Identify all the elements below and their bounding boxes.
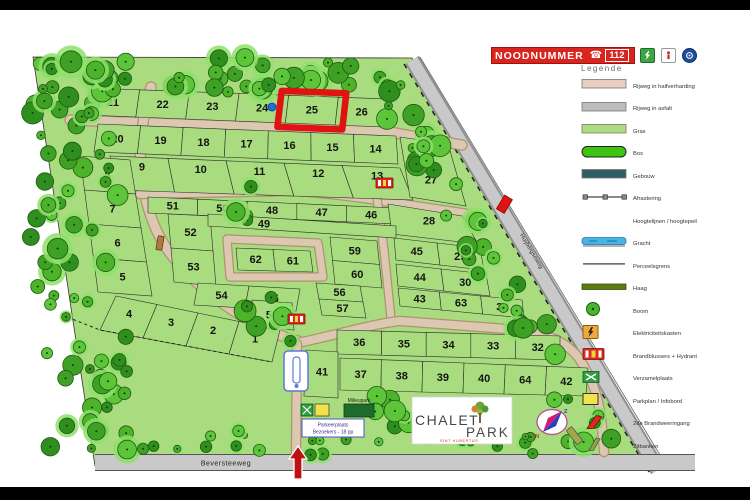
assembly-point-icon (301, 404, 313, 416)
plot-number: 26 (356, 107, 368, 119)
legend-item: Perceelsgrens (581, 257, 747, 276)
legend-item: Hoogtelijnen / hoogtepeil (581, 212, 747, 231)
legend-swatch-tree-icon (581, 302, 633, 321)
legend-swatch-blank-icon (581, 212, 633, 231)
legend-item-label: Verzamelplaats (633, 376, 673, 382)
legend-item: Zitbanken (581, 437, 747, 456)
legend: Legende Rijweg in halfverhardingRijweg i… (581, 64, 747, 460)
legend-item-label: Parkplan / Infobord (633, 399, 682, 405)
plot-number: 12 (312, 168, 324, 180)
legend-item-label: Brandblussers + Hydrant (633, 354, 697, 360)
plot-number: 38 (396, 371, 408, 383)
plot-number: 24 (256, 103, 269, 115)
plot-number: 36 (353, 337, 365, 349)
legend-item-label: Haag (633, 286, 647, 292)
street-label-bottom: Beversteeweg (201, 461, 251, 468)
svg-text:PARK: PARK (466, 425, 510, 440)
legend-item-label: Zitbanken (633, 444, 658, 450)
svg-text:Milieupark: Milieupark (348, 398, 371, 404)
legend-item-label: Rijweg in asfalt (633, 106, 672, 112)
header-icons (640, 48, 697, 63)
plot-number: 9 (139, 162, 145, 174)
legend-item-label: Gebouw (633, 174, 655, 180)
plot-number: 33 (487, 341, 499, 353)
legend-item: Brandblussers + Hydrant (581, 347, 747, 366)
plot-number: 10 (195, 164, 207, 176)
infoboard-icon (315, 404, 329, 416)
plot-number: 35 (398, 338, 410, 350)
legend-swatch-rect-icon (581, 122, 633, 141)
phone-icon: ☎ (590, 51, 602, 61)
svg-text:SINT HUBERTUS: SINT HUBERTUS (440, 439, 478, 443)
legend-swatch-hedge-icon (581, 280, 633, 299)
plot-number: 3 (168, 317, 174, 329)
plot-number: 4 (126, 309, 133, 321)
legend-item-label: Bos (633, 151, 643, 157)
legend-item-label: Boom (633, 309, 648, 315)
plot-number: 59 (349, 245, 361, 257)
legend-item-label: Rijweg in halfverharding (633, 84, 695, 90)
plot-number: 44 (414, 272, 427, 284)
legend-item: Verzamelplaats (581, 370, 747, 389)
plot-number: 56 (333, 287, 345, 299)
plot-number: 53 (187, 261, 199, 273)
legend-swatch-fence-icon (581, 190, 633, 209)
plot-number: 63 (455, 298, 467, 310)
plot-number: 22 (157, 99, 169, 111)
milieupark-sign: Milieupark (344, 398, 374, 417)
legend-item: Parkplan / Infobord (581, 392, 747, 411)
legend-swatch-rect-icon (581, 100, 633, 119)
legend-items: Rijweg in halfverhardingRijweg in asfalt… (581, 77, 747, 456)
legend-swatch-redbar-icon (581, 415, 633, 434)
parking-sign: ParkeerplaatsBezoekers - 18 pp (302, 419, 364, 437)
plot-number: 42 (560, 376, 572, 388)
plot-number: 5 (119, 272, 125, 284)
plot-number: 40 (478, 373, 490, 385)
plot-number: 6 (114, 238, 120, 250)
legend-swatch-assembly-icon (581, 370, 633, 389)
plot-number: 48 (266, 205, 278, 217)
plot-number: 14 (369, 144, 382, 156)
legend-swatch-bench-icon (581, 437, 633, 456)
svg-text:N: N (535, 434, 539, 440)
legend-item: Elektriciteitskasten (581, 325, 747, 344)
legend-item-label: Afrastering (633, 196, 661, 202)
plot-number: 41 (316, 367, 328, 379)
plot-number: 2 (210, 325, 216, 337)
plot-number: 43 (414, 294, 426, 306)
legend-swatch-rect-icon (581, 167, 633, 186)
info-icon (682, 48, 697, 63)
plot-number: 54 (215, 290, 228, 302)
plot-number: 39 (437, 372, 449, 384)
legend-item-label: Hoogtelijnen / hoogtepeil (633, 219, 697, 225)
plot-number: 16 (283, 140, 295, 152)
legend-item: Bos (581, 145, 747, 164)
chaletpark-logo: CHALETPARKSINT HUBERTUS (412, 397, 512, 444)
legend-item-label: 2de Brandweeringang (633, 421, 690, 427)
legend-item: Rijweg in halfverharding (581, 77, 747, 96)
plot-number: 19 (154, 135, 166, 147)
legend-item: Rijweg in asfalt (581, 100, 747, 119)
emergency-number: 112 (605, 49, 628, 62)
first-aid-icon (661, 48, 676, 63)
legend-swatch-rect-icon (581, 77, 633, 96)
plot-number: 46 (365, 209, 377, 221)
plot-number: 52 (184, 227, 196, 239)
legend-item-label: Perceelsgrens (633, 264, 670, 270)
legend-item: Gras (581, 122, 747, 141)
legend-swatch-water-icon (581, 235, 633, 254)
plot-number: 64 (519, 375, 532, 387)
plot-number: 57 (336, 303, 348, 315)
plot-number: 45 (411, 246, 423, 258)
plot-number: 28 (423, 216, 435, 228)
legend-swatch-power-icon (581, 325, 633, 344)
legend-item: Afrastering (581, 190, 747, 209)
plot-number: 17 (240, 139, 252, 151)
legend-swatch-line-icon (581, 257, 633, 276)
emergency-banner-label: NOODNUMMER (495, 50, 584, 62)
entrance-gate (284, 351, 308, 391)
legend-item: Haag (581, 280, 747, 299)
legend-item-label: Gras (633, 129, 646, 135)
plot-number: 11 (254, 166, 266, 178)
plot-number: 60 (351, 269, 363, 281)
legend-item-label: Elektriciteitskasten (633, 331, 681, 337)
emergency-banner: NOODNUMMER ☎ 112 (491, 47, 635, 64)
legend-title: Legende (581, 64, 747, 73)
plot-number: 61 (287, 255, 299, 267)
legend-swatch-oval-icon (581, 145, 633, 164)
plot-number: 18 (197, 137, 209, 149)
aed-icon (640, 48, 655, 63)
svg-text:Parkeerplaats: Parkeerplaats (318, 423, 349, 429)
park-map-image: 2122232425262019181716151491011121387654… (0, 0, 750, 500)
plot-number: 34 (442, 340, 455, 352)
plot-number: 23 (206, 101, 218, 113)
legend-item: 2de Brandweeringang (581, 415, 747, 434)
svg-text:Bezoekers - 18 pp: Bezoekers - 18 pp (313, 430, 354, 436)
plot-number: 25 (306, 105, 318, 117)
legend-swatch-infoboard-icon (581, 392, 633, 411)
legend-swatch-hydrant-icon (581, 347, 633, 366)
location-dot (268, 103, 276, 111)
legend-item-label: Gracht (633, 241, 650, 247)
hydrant-icon (376, 178, 393, 188)
plot-number: 37 (354, 369, 366, 381)
plot-number: 32 (532, 342, 544, 354)
legend-item: Gebouw (581, 167, 747, 186)
hydrant-icon (288, 314, 305, 324)
plot-number: 49 (258, 219, 270, 231)
legend-item: Boom (581, 302, 747, 321)
plot-number: 47 (315, 207, 327, 219)
plot-number: 51 (167, 201, 179, 213)
legend-item: Gracht (581, 235, 747, 254)
plot-number: 15 (326, 142, 338, 154)
plot-number: 62 (250, 254, 262, 266)
